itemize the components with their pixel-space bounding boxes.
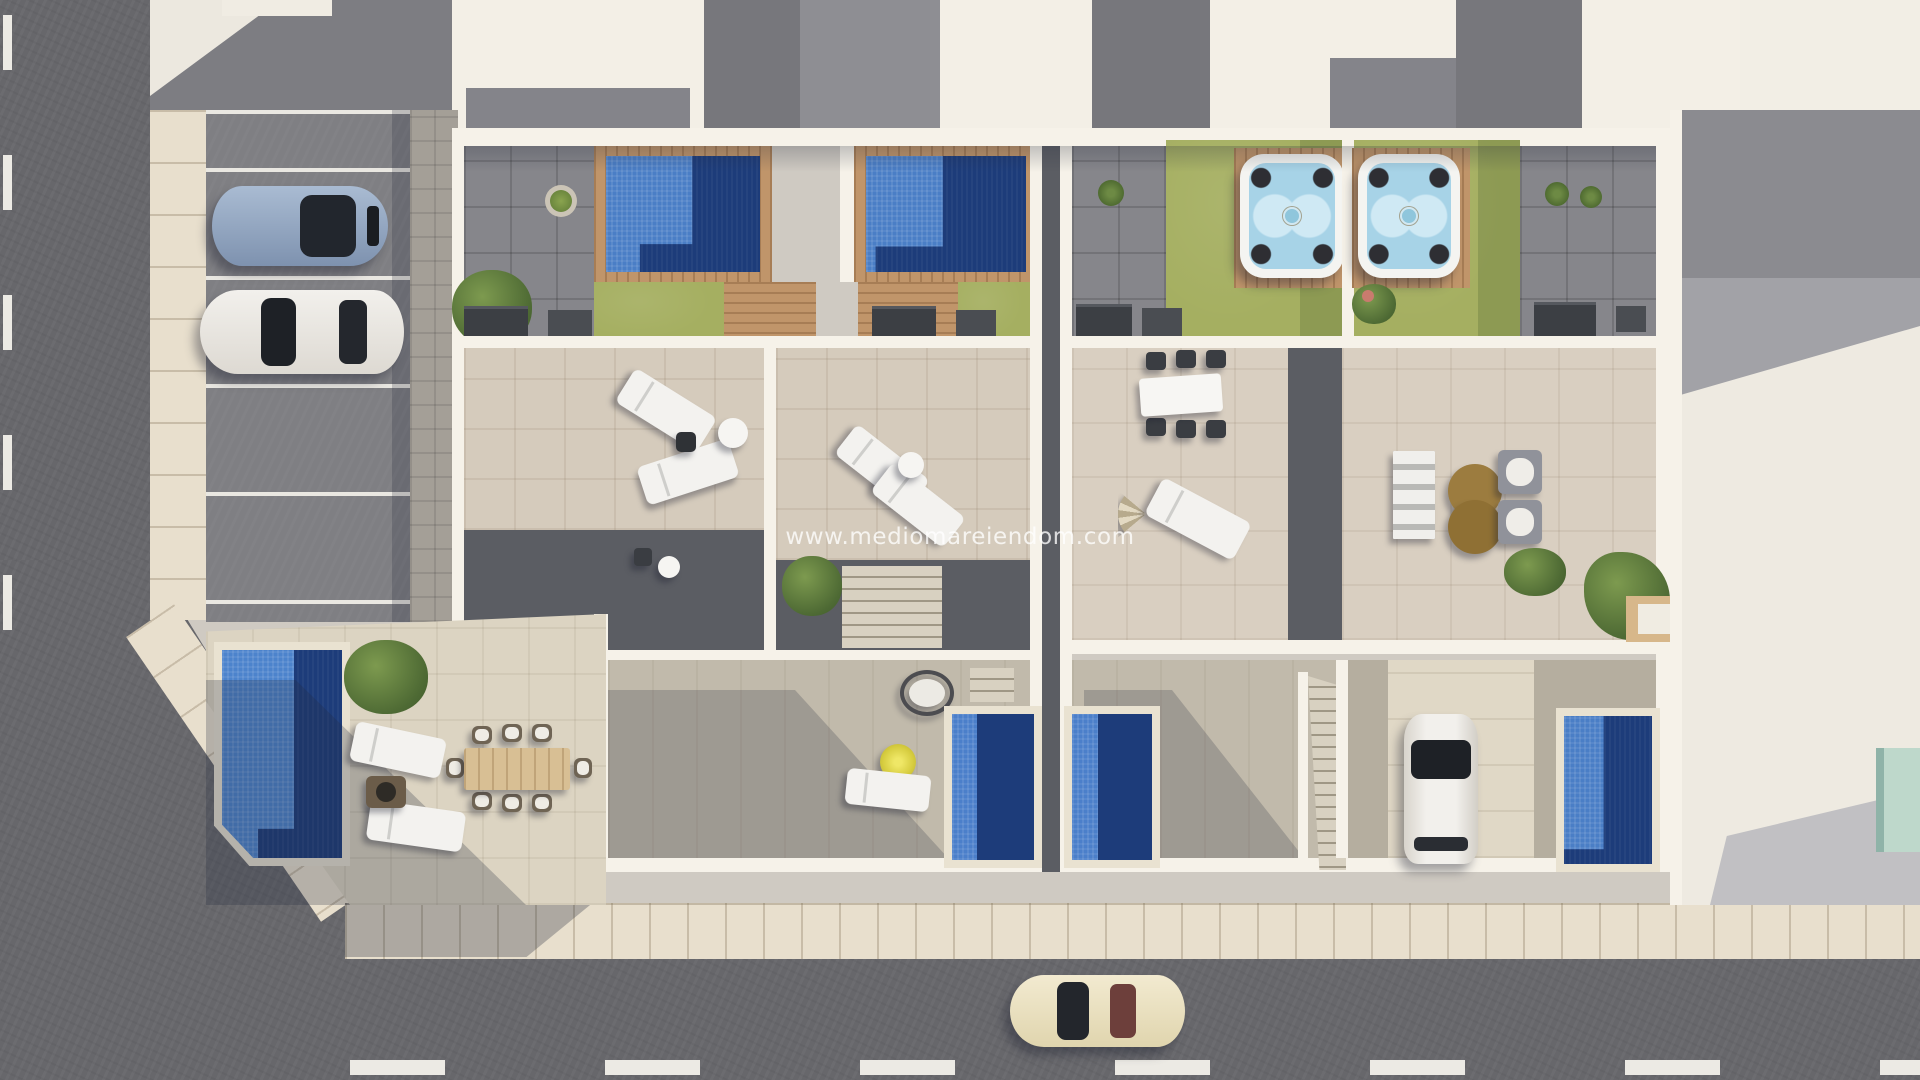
rooftop-pool-1 — [606, 156, 760, 272]
wicker-chair — [574, 758, 592, 778]
rooftop-pool-2 — [866, 156, 1026, 272]
dining-table-white — [1139, 373, 1223, 417]
roof-parapet-sliver — [222, 0, 332, 16]
neighbor-boundary-wall — [1670, 110, 1682, 905]
parking-stall-line — [206, 276, 410, 280]
hot-tub-1 — [1240, 154, 1344, 278]
roof-recess-1 — [466, 88, 690, 130]
patio-palm — [1580, 186, 1602, 208]
flower-pink — [1362, 290, 1374, 302]
round-table — [718, 418, 748, 448]
roof-wall-lit — [800, 0, 940, 130]
pool2-deep-end — [866, 156, 1026, 272]
roof-notch-3 — [1330, 58, 1456, 130]
parking-stall-line — [206, 168, 410, 172]
white-car-in-driveway — [1404, 714, 1478, 864]
hot-tub-2 — [1358, 154, 1460, 278]
parking-stall-line — [206, 384, 410, 388]
wicker-chair — [502, 794, 522, 812]
bistro-table — [658, 556, 680, 578]
lane-marking-left — [3, 15, 12, 655]
yard-bush — [344, 640, 428, 714]
pool-C-shallow — [1072, 714, 1098, 860]
watermark-text: www.mediomareiendom.com — [785, 524, 1134, 550]
bbq-sink-unit — [1142, 308, 1182, 336]
round-table — [898, 452, 924, 478]
dining-chair — [1146, 418, 1166, 436]
wicker-chair — [532, 724, 552, 742]
backyard-pool-D — [1564, 716, 1652, 864]
bistro-chair — [634, 548, 652, 566]
wall-shadow-on-paver — [392, 110, 458, 622]
bbq-sink-unit — [1616, 306, 1646, 332]
patio-palm — [1545, 182, 1569, 206]
wicker-chair — [532, 794, 552, 812]
sidewalk-left — [150, 110, 208, 620]
terrace-bush — [1504, 548, 1566, 596]
pool-B-shallow — [952, 714, 977, 860]
bbq-counter — [1076, 304, 1132, 339]
dining-chair — [1176, 350, 1196, 368]
armchair-cushion — [1506, 508, 1534, 536]
steps-yardB — [970, 668, 1014, 702]
neighbor-roof-shaded — [1670, 110, 1920, 278]
stairs-unit2 — [842, 566, 942, 648]
roof-gap-1 — [704, 0, 800, 130]
backyard-pool-B — [952, 714, 1034, 860]
parking-stall-line — [206, 600, 410, 604]
dining-chair — [1146, 352, 1166, 370]
dining-chair — [1206, 350, 1226, 368]
lane-marking-bottom — [350, 1060, 1920, 1075]
armchair-cushion — [1506, 458, 1534, 486]
neighbor-teal-pool — [1876, 748, 1920, 852]
wicker-chair — [502, 724, 522, 742]
side-table — [676, 432, 696, 452]
bbq-sink-unit — [548, 310, 592, 338]
patio-palm — [1098, 180, 1124, 206]
planter-greenery — [550, 190, 572, 212]
wicker-chair — [472, 792, 492, 810]
blue-parked-car — [212, 186, 388, 266]
upper-band-front-wall-left — [464, 336, 1030, 348]
pool1-deep-end — [606, 156, 760, 272]
stairs-side-wall — [1298, 672, 1308, 872]
upper-band-front-wall-right — [1072, 336, 1656, 348]
outdoor-sofa — [1388, 446, 1440, 544]
wood-dining-table — [464, 748, 570, 790]
wall-yardC-yardD — [1336, 660, 1348, 858]
walkway-terrace3-terrace4 — [1288, 348, 1342, 640]
dining-chair — [1206, 420, 1226, 438]
roof-gap-3 — [1456, 0, 1582, 130]
parking-stall-line — [206, 110, 410, 114]
roof-volume-2 — [940, 0, 1092, 130]
roof-shadow-on-upper-band — [464, 146, 1656, 172]
center-walkway — [1042, 146, 1060, 872]
wicker-chair — [472, 726, 492, 744]
white-parked-car — [200, 290, 404, 374]
flower-bush — [1352, 284, 1396, 324]
dining-chair — [1176, 420, 1196, 438]
fire-table-top — [376, 782, 396, 802]
front-wall-right-pair — [1072, 640, 1656, 654]
roof-gap-2 — [1092, 0, 1210, 130]
aerial-render-scene: www.mediomareiendom.com — [0, 0, 1920, 1080]
bbq-counter — [1534, 302, 1596, 337]
wicker-chair — [446, 758, 464, 778]
terrace-palm — [782, 556, 842, 616]
bbq-sink-unit — [956, 310, 996, 338]
backyard-pool-C — [1072, 714, 1152, 860]
pool-D-deep-end — [1564, 716, 1652, 864]
cream-car-on-street — [1010, 975, 1185, 1047]
parking-stall-line — [206, 492, 410, 496]
round-coffee-table — [1448, 500, 1502, 554]
wall-terrace1-terrace2 — [764, 348, 776, 650]
